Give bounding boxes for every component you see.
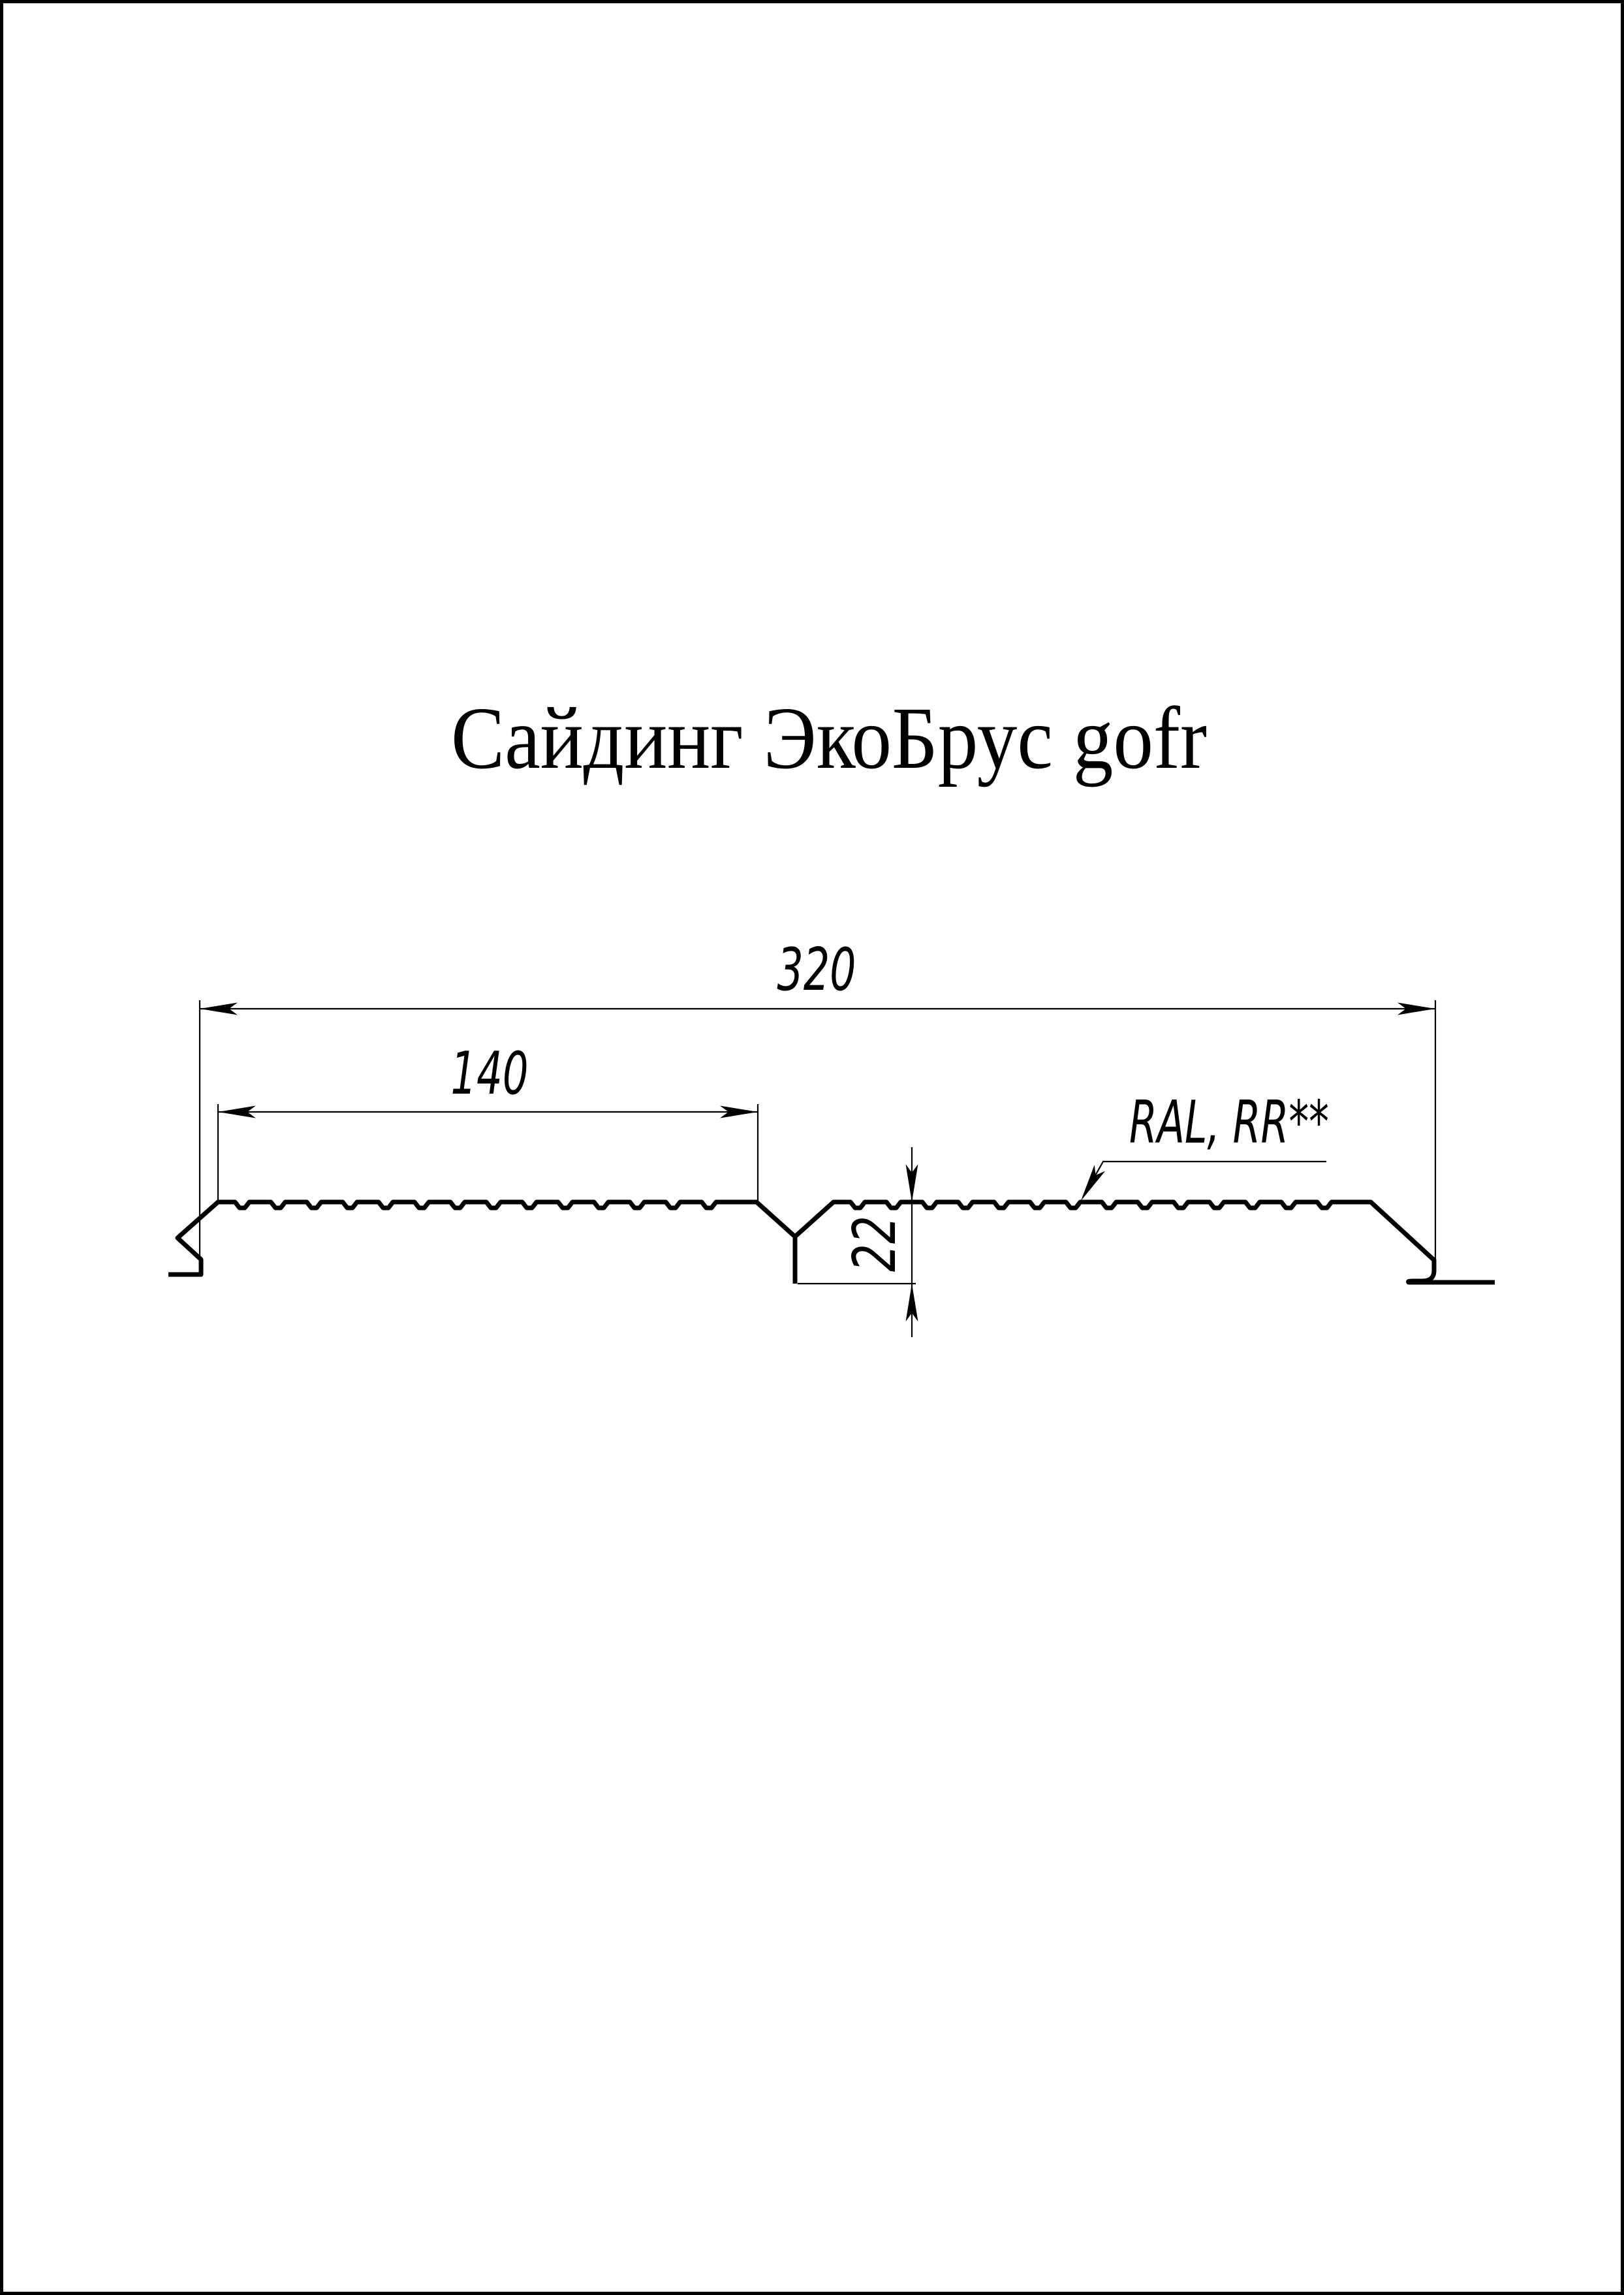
drawing-page: Сайдинг ЭкоБрус gofr 320 140 bbox=[0, 0, 1624, 2295]
coating-label: RAL, RR** bbox=[1129, 1088, 1329, 1157]
page-border bbox=[2, 2, 1623, 2294]
dimension-label-320: 320 bbox=[777, 936, 856, 1004]
profile-outline bbox=[168, 1202, 1495, 1282]
leader-line bbox=[1083, 1162, 1326, 1197]
coating-leader-note: RAL, RR** bbox=[1076, 1088, 1329, 1204]
dimension-panel-width: 140 bbox=[218, 1039, 758, 1201]
dimension-label-140: 140 bbox=[451, 1039, 529, 1108]
dimension-profile-height: 22 bbox=[798, 1147, 918, 1337]
profile-section bbox=[168, 1202, 1495, 1284]
dimension-label-22: 22 bbox=[841, 1216, 909, 1272]
siding-profile-drawing: Сайдинг ЭкоБрус gofr 320 140 bbox=[0, 0, 1624, 2295]
leader-arrow-icon bbox=[1076, 1165, 1105, 1204]
page-title: Сайдинг ЭкоБрус gofr bbox=[451, 689, 1207, 787]
